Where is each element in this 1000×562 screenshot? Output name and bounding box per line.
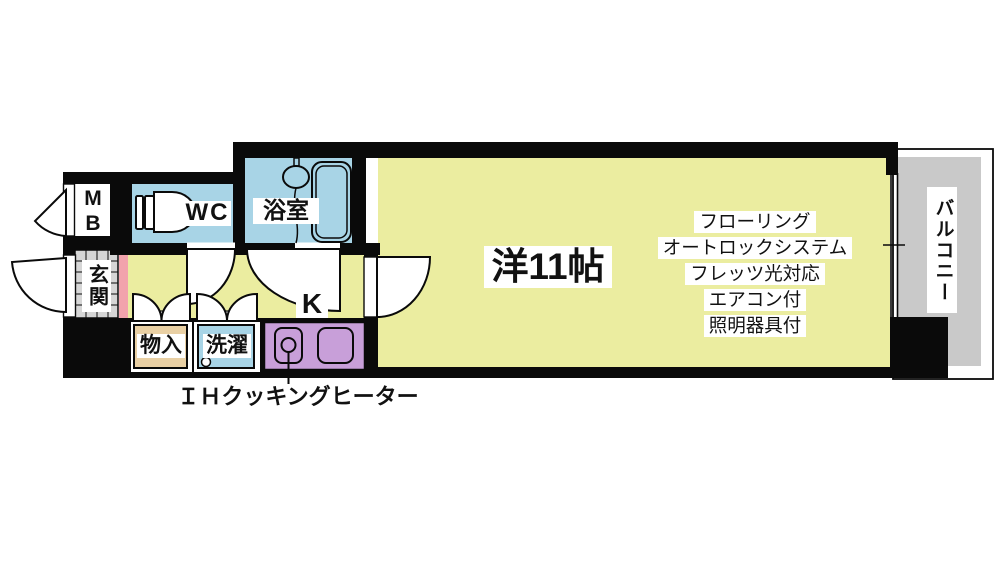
laundry-label: 洗濯 bbox=[203, 334, 251, 358]
ih-heater-label: ＩＨクッキングヒーター bbox=[180, 384, 416, 410]
feature-lighting: 照明器具付 bbox=[704, 315, 807, 337]
meter-box-label: M B bbox=[80, 186, 106, 236]
feature-flets: フレッツ光対応 bbox=[685, 263, 825, 285]
feature-aircon: エアコン付 bbox=[704, 289, 807, 311]
balcony-label: バルコニー bbox=[927, 187, 957, 313]
mb-exterior-door-arc bbox=[35, 190, 66, 236]
kitchen-label: K bbox=[296, 290, 328, 318]
toilet-tank-left bbox=[136, 196, 143, 229]
floorplan: M B WC 浴室 玄関 物入 洗濯 K 洋11帖 バルコニー フローリング オ… bbox=[0, 0, 1000, 562]
entrance-exterior-door-arc bbox=[12, 258, 66, 312]
mainroom-door-leaf bbox=[364, 257, 377, 317]
feature-autolock: オートロックシステム bbox=[658, 237, 852, 259]
wall-window-stub bbox=[886, 142, 898, 175]
main-room-label: 洋11帖 bbox=[484, 246, 612, 288]
wall-bottom bbox=[378, 367, 890, 378]
feature-list: フローリング オートロックシステム フレッツ光対応 エアコン付 照明器具付 bbox=[620, 211, 890, 337]
wc-label: WC bbox=[184, 201, 231, 226]
wall-bath-right bbox=[352, 142, 366, 255]
storage-label: 物入 bbox=[137, 334, 185, 358]
wall-top-left bbox=[63, 172, 245, 184]
wall-wc-bath-divider bbox=[233, 142, 245, 255]
wall-top-right bbox=[233, 142, 893, 158]
bathroom-label: 浴室 bbox=[253, 198, 319, 224]
wall-balcony-block bbox=[890, 317, 948, 378]
feature-flooring: フローリング bbox=[694, 211, 815, 233]
laundry-drain-icon bbox=[202, 358, 211, 367]
entrance-label: 玄関 bbox=[82, 260, 111, 312]
toilet-tank-right bbox=[145, 196, 154, 229]
entrance-step bbox=[119, 250, 128, 318]
